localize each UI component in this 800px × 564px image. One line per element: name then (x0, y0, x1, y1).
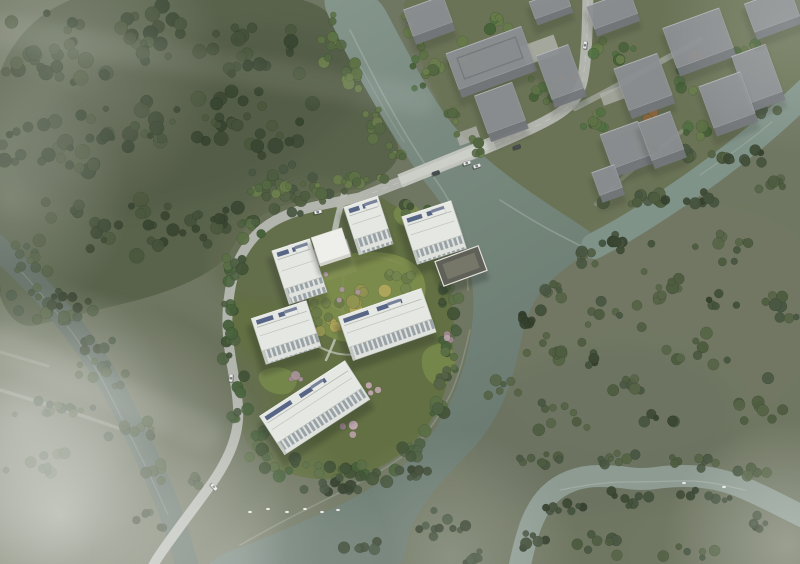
aerial-rendering (0, 0, 800, 564)
rendering-scene (0, 0, 800, 564)
